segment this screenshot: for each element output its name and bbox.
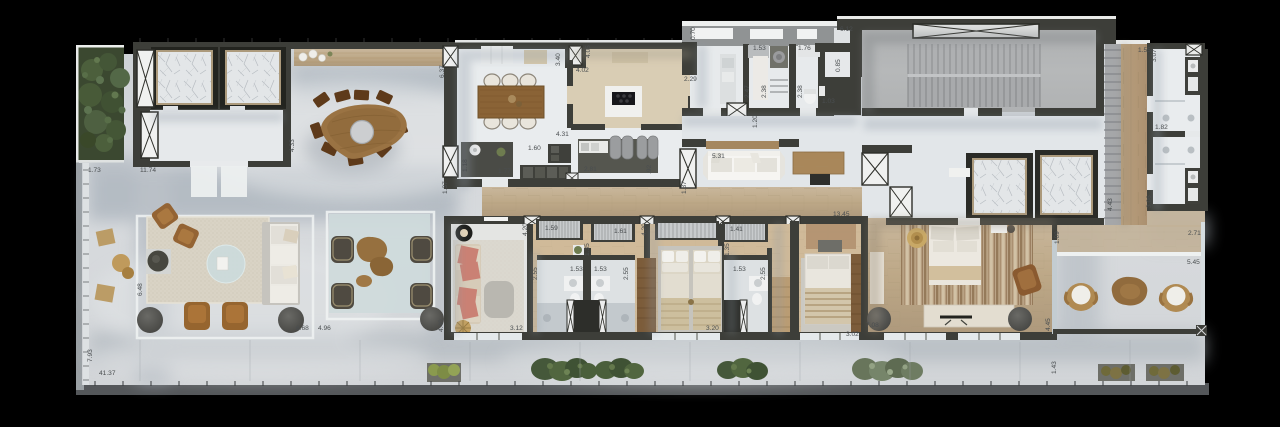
svg-text:1.55: 1.55 bbox=[1138, 47, 1151, 54]
svg-text:0.70: 0.70 bbox=[690, 27, 697, 40]
svg-text:1.35: 1.35 bbox=[584, 243, 591, 256]
svg-text:3.07: 3.07 bbox=[1151, 49, 1158, 62]
svg-text:2.55: 2.55 bbox=[760, 267, 767, 280]
svg-text:7.08: 7.08 bbox=[866, 322, 879, 329]
svg-text:4.20: 4.20 bbox=[641, 223, 648, 236]
svg-text:1.37: 1.37 bbox=[681, 181, 688, 194]
svg-text:1.35: 1.35 bbox=[724, 243, 731, 256]
svg-text:3.40: 3.40 bbox=[555, 53, 562, 66]
svg-text:4.02: 4.02 bbox=[576, 67, 589, 74]
svg-text:5.45: 5.45 bbox=[1187, 259, 1200, 266]
svg-text:2.81: 2.81 bbox=[584, 166, 597, 173]
svg-text:2.55: 2.55 bbox=[532, 267, 539, 280]
svg-text:4.05: 4.05 bbox=[585, 45, 592, 58]
svg-text:11.74: 11.74 bbox=[140, 167, 156, 174]
svg-text:41.37: 41.37 bbox=[99, 370, 116, 377]
svg-text:13.45: 13.45 bbox=[833, 211, 850, 218]
svg-text:1.18: 1.18 bbox=[462, 159, 469, 172]
svg-text:1.73: 1.73 bbox=[88, 167, 101, 174]
svg-text:1.53: 1.53 bbox=[733, 266, 746, 273]
svg-text:2.47: 2.47 bbox=[744, 85, 751, 98]
svg-text:1.20: 1.20 bbox=[752, 115, 759, 128]
svg-text:4.40: 4.40 bbox=[438, 319, 445, 332]
svg-text:0.85: 0.85 bbox=[835, 59, 842, 72]
svg-text:1.43: 1.43 bbox=[1051, 361, 1058, 374]
svg-text:3.12: 3.12 bbox=[510, 325, 523, 332]
svg-text:3.02: 3.02 bbox=[846, 331, 859, 338]
svg-text:6.37: 6.37 bbox=[439, 65, 446, 78]
svg-text:1.09: 1.09 bbox=[1054, 231, 1061, 244]
svg-text:1.60: 1.60 bbox=[528, 145, 541, 152]
svg-text:2.71: 2.71 bbox=[1188, 230, 1201, 237]
svg-text:2.55: 2.55 bbox=[623, 267, 630, 280]
svg-text:2.38: 2.38 bbox=[761, 85, 768, 98]
svg-text:4.96: 4.96 bbox=[318, 325, 331, 332]
svg-text:1.41: 1.41 bbox=[730, 226, 743, 233]
svg-text:4.45: 4.45 bbox=[1045, 318, 1052, 331]
svg-text:1.59: 1.59 bbox=[545, 225, 558, 232]
svg-text:1.53: 1.53 bbox=[594, 266, 607, 273]
svg-text:1.37: 1.37 bbox=[442, 181, 449, 194]
svg-text:3.20: 3.20 bbox=[706, 325, 719, 332]
svg-text:1.82: 1.82 bbox=[1155, 124, 1168, 131]
svg-text:4.43: 4.43 bbox=[1107, 198, 1114, 211]
svg-text:3.06: 3.06 bbox=[1146, 195, 1153, 208]
svg-text:.92: .92 bbox=[646, 165, 653, 174]
svg-text:1.76: 1.76 bbox=[798, 45, 811, 52]
svg-text:1.53: 1.53 bbox=[753, 45, 766, 52]
svg-text:6.68: 6.68 bbox=[296, 325, 309, 332]
svg-text:4.20: 4.20 bbox=[522, 223, 529, 236]
svg-text:4.31: 4.31 bbox=[556, 131, 569, 138]
svg-text:1.77: 1.77 bbox=[498, 168, 511, 175]
svg-text:5.31: 5.31 bbox=[712, 153, 725, 160]
svg-text:1.53: 1.53 bbox=[570, 266, 583, 273]
svg-text:1.61: 1.61 bbox=[614, 228, 627, 235]
svg-text:6.12: 6.12 bbox=[840, 26, 853, 33]
svg-text:4.33: 4.33 bbox=[289, 139, 296, 152]
svg-text:7.93: 7.93 bbox=[87, 349, 94, 362]
svg-text:2.29: 2.29 bbox=[684, 76, 697, 83]
svg-text:2.38: 2.38 bbox=[797, 85, 804, 98]
svg-text:6.48: 6.48 bbox=[137, 283, 144, 296]
svg-text:1.03: 1.03 bbox=[822, 98, 835, 105]
